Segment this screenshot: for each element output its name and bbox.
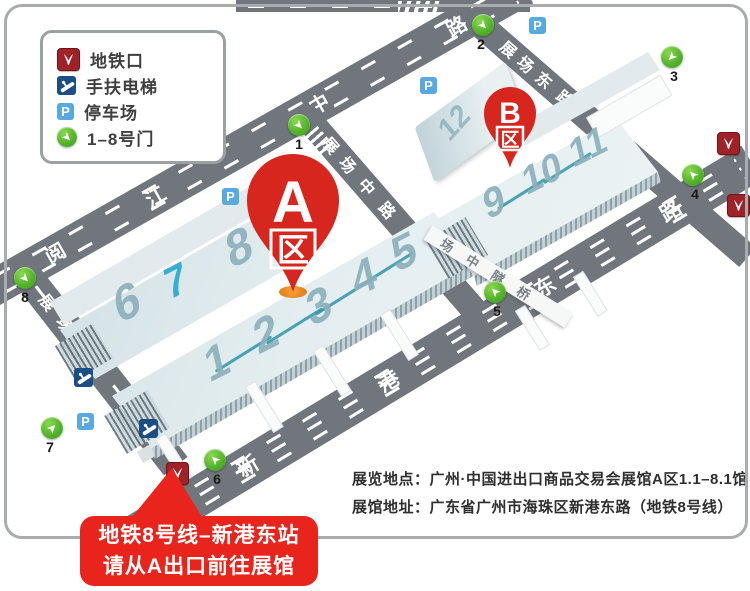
road-name-char: 路 xyxy=(438,7,473,44)
exhibition-traffic-map: 阅 江 中 路 展 场 西 路 展 场 中 路 展 场 东 路 xyxy=(0,0,750,591)
road-name-char: 江 xyxy=(137,177,172,214)
gate-5-icon: ➤ xyxy=(484,281,506,303)
crosswalk xyxy=(398,1,440,16)
legend-item-escalator: 手扶电梯 xyxy=(57,74,223,96)
pin-area-a: A 区 xyxy=(237,142,349,299)
parking-letter: P xyxy=(226,189,235,204)
metro-callout: 地铁8号线–新港东站 请从A出口前往展馆 xyxy=(80,516,318,586)
gate-arrow-icon: ➤ xyxy=(685,167,701,183)
gate-6-icon: ➤ xyxy=(204,449,226,471)
pin-b-letter: B xyxy=(499,97,521,130)
gate-arrow-icon: ➤ xyxy=(44,420,60,436)
pin-a-letter: A xyxy=(272,170,314,235)
gate-4-number: 4 xyxy=(684,186,706,202)
gate-arrow-icon: ➤ xyxy=(664,49,680,65)
gate-2-icon: ➤ xyxy=(472,14,494,36)
legend-box: 地铁口 手扶电梯 P 停车场 ➤ 1–8号门 xyxy=(40,30,226,164)
gate-arrow-icon: ➤ xyxy=(17,270,33,286)
callout-line2: 请从A出口前往展馆 xyxy=(103,551,295,582)
gate-3-number: 3 xyxy=(663,68,685,84)
legend-item-parking: P 停车场 xyxy=(57,100,223,122)
parking-icon: P xyxy=(57,103,74,120)
gate-arrow-icon: ➤ xyxy=(475,17,491,33)
road-name-char: 阅 xyxy=(37,234,72,271)
exhibition-address-line: 展馆地址：广东省广州市海珠区新港东路（地铁8号线） xyxy=(352,496,733,517)
gate-arrow-icon: ➤ xyxy=(59,129,75,145)
gate-6-number: 6 xyxy=(206,471,228,487)
road-name-char: 港 xyxy=(370,362,406,400)
parking-icon: P xyxy=(77,413,94,430)
gate-3-icon: ➤ xyxy=(661,46,683,68)
parking-icon: P xyxy=(529,17,546,34)
parking-letter: P xyxy=(61,104,70,119)
gate-4-icon: ➤ xyxy=(682,164,704,186)
legend-item-gates: ➤ 1–8号门 xyxy=(57,126,223,148)
legend-label: 地铁口 xyxy=(90,47,144,72)
escalator-icon xyxy=(57,76,76,95)
gate-8-number: 8 xyxy=(14,289,36,305)
gate-arrow-icon: ➤ xyxy=(207,452,223,468)
gate-2-number: 2 xyxy=(470,36,492,52)
escalator-icon xyxy=(74,368,93,387)
gate-7-icon: ➤ xyxy=(41,417,63,439)
legend-label: 停车场 xyxy=(84,99,138,124)
gate-icon: ➤ xyxy=(57,127,77,147)
gate-arrow-icon: ➤ xyxy=(291,117,307,133)
pin-b-suffix: 区 xyxy=(500,130,519,151)
map-area: 阅 江 中 路 展 场 西 路 展 场 中 路 展 场 东 路 xyxy=(0,0,750,538)
legend-label: 1–8号门 xyxy=(87,125,154,150)
gate-5-number: 5 xyxy=(486,303,508,319)
gate-8-icon: ➤ xyxy=(14,267,36,289)
road-name-char: 路 xyxy=(371,193,405,227)
legend-item-metro: 地铁口 xyxy=(57,48,223,70)
gate-arrow-icon: ➤ xyxy=(487,284,503,300)
escalator-icon xyxy=(139,419,158,438)
parking-letter: P xyxy=(81,414,90,429)
metro-icon-xingangdong-station xyxy=(166,462,189,485)
metro-icon xyxy=(717,132,740,155)
metro-icon xyxy=(727,194,750,217)
callout-line1: 地铁8号线–新港东站 xyxy=(98,520,299,551)
legend-label: 手扶电梯 xyxy=(86,73,158,98)
pin-a-suffix: 区 xyxy=(277,232,309,268)
metro-icon xyxy=(57,48,80,71)
parking-letter: P xyxy=(533,18,542,33)
road-name-char: 新 xyxy=(230,446,266,484)
gate-1-icon: ➤ xyxy=(288,114,310,136)
exhibition-venue-line: 展览地点：广州·中国进出口商品交易会展馆A区1.1–8.1馆 xyxy=(352,468,748,489)
pin-area-b: B 区 xyxy=(478,80,542,175)
parking-letter: P xyxy=(424,78,433,93)
gate-7-number: 7 xyxy=(39,439,61,455)
road-name-char: 中 xyxy=(351,169,385,203)
parking-icon: P xyxy=(420,77,437,94)
